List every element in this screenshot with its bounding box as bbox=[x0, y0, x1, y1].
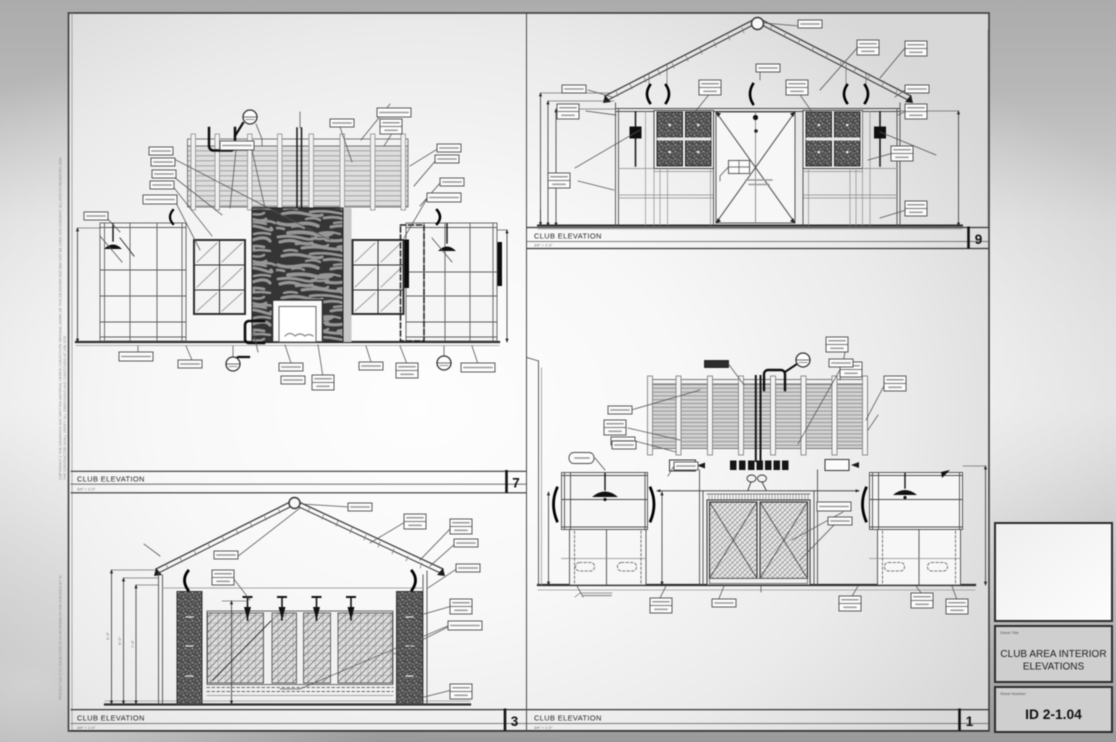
svg-text:3/4" = 1'-0": 3/4" = 1'-0" bbox=[77, 726, 96, 730]
svg-text:CLUB ELEVATION: CLUB ELEVATION bbox=[77, 475, 145, 484]
svg-text:THE CONTRACTOR SHALL VERIFY AL: THE CONTRACTOR SHALL VERIFY ALL DIMENSIO… bbox=[63, 335, 67, 480]
svg-text:COPYRIGHT C THE DRAWINGS AND W: COPYRIGHT C THE DRAWINGS AND WRITTEN MAT… bbox=[59, 158, 63, 480]
svg-text:9: 9 bbox=[975, 232, 983, 247]
svg-text:3: 3 bbox=[511, 714, 519, 729]
svg-text:CLUB ELEVATION: CLUB ELEVATION bbox=[534, 232, 602, 241]
svg-text:ID 2-1.04: ID 2-1.04 bbox=[1025, 707, 1082, 722]
svg-text:3/4" = 1'-0": 3/4" = 1'-0" bbox=[534, 726, 553, 730]
svg-text:9'-0": 9'-0" bbox=[105, 631, 110, 640]
svg-text:Sheet Title: Sheet Title bbox=[1000, 630, 1020, 635]
svg-text:CLUB ELEVATION: CLUB ELEVATION bbox=[77, 714, 145, 723]
svg-text:PROJECT NO 0712 ISSUE DATE 03.: PROJECT NO 0712 ISSUE DATE 03.04.08 DRAW… bbox=[59, 575, 63, 700]
svg-text:Sheet Number: Sheet Number bbox=[1000, 691, 1026, 696]
svg-text:CLUB AREA INTERIOR: CLUB AREA INTERIOR bbox=[1000, 649, 1106, 660]
svg-text:3/4" = 1'-0": 3/4" = 1'-0" bbox=[77, 488, 96, 492]
svg-text:3/4" = 1'-0": 3/4" = 1'-0" bbox=[534, 244, 553, 248]
svg-text:8'-0": 8'-0" bbox=[117, 636, 122, 645]
svg-text:ELEVATIONS: ELEVATIONS bbox=[1023, 662, 1085, 673]
svg-text:CLUB ELEVATION: CLUB ELEVATION bbox=[534, 714, 602, 723]
svg-text:7'-6": 7'-6" bbox=[130, 639, 135, 648]
svg-text:7: 7 bbox=[512, 476, 520, 491]
svg-text:1: 1 bbox=[966, 714, 974, 729]
